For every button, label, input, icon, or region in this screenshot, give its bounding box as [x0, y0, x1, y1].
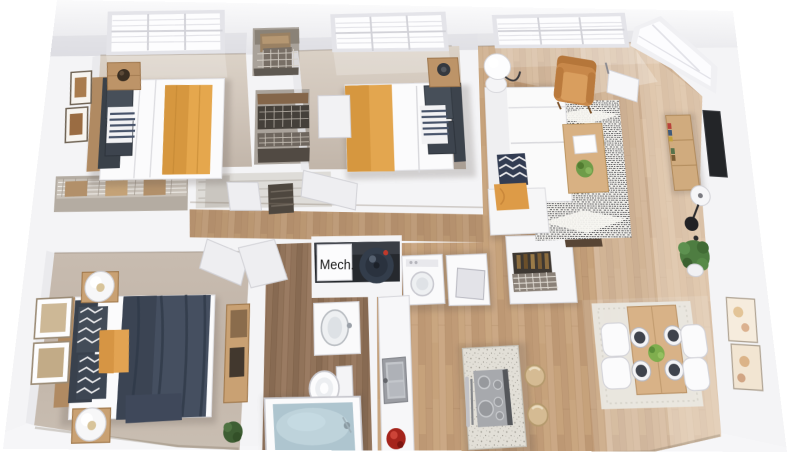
svg-text:Mech.: Mech. — [320, 259, 355, 273]
